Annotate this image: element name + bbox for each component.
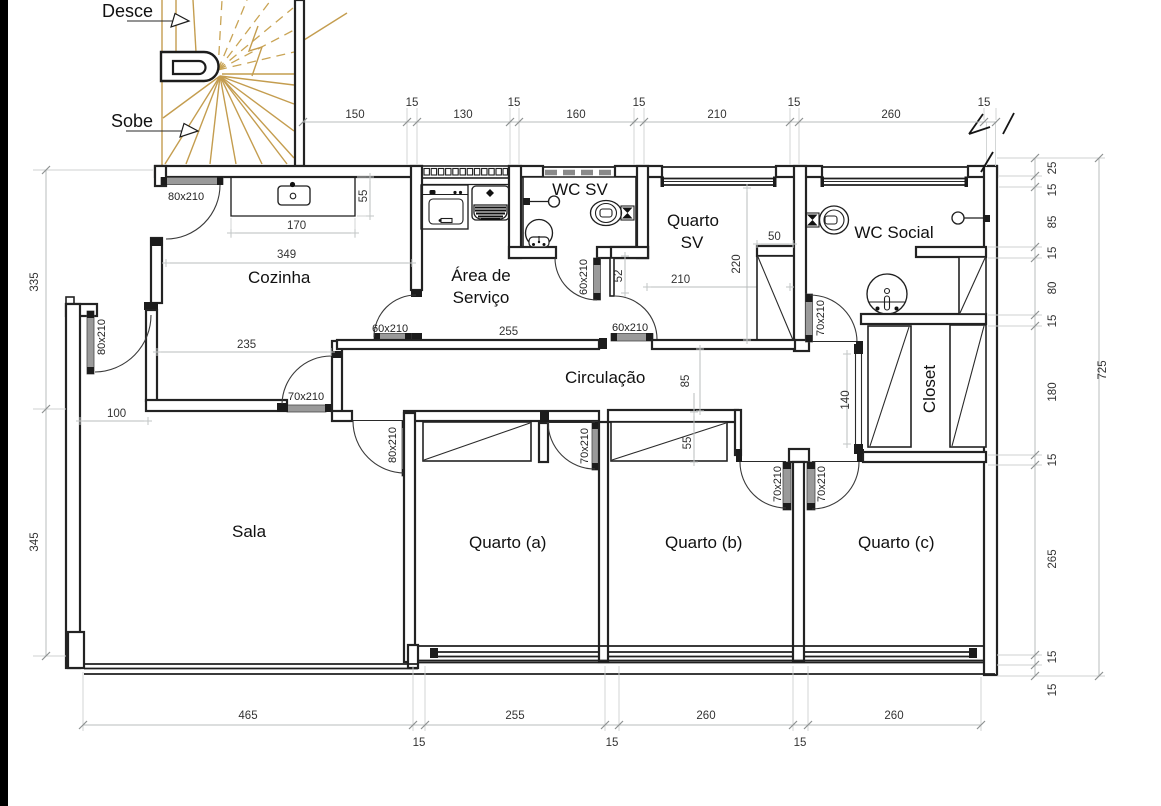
svg-text:60x210: 60x210 <box>578 259 590 295</box>
svg-text:70x210: 70x210 <box>815 300 827 336</box>
svg-text:Cozinha: Cozinha <box>248 268 311 287</box>
svg-text:100: 100 <box>107 408 126 420</box>
svg-text:349: 349 <box>277 249 296 261</box>
svg-text:55: 55 <box>358 190 370 203</box>
svg-text:Desce: Desce <box>102 1 153 21</box>
svg-text:Sala: Sala <box>232 522 267 541</box>
svg-text:85: 85 <box>1047 216 1059 229</box>
svg-text:160: 160 <box>566 109 585 121</box>
svg-text:235: 235 <box>237 339 256 351</box>
svg-text:15: 15 <box>1047 315 1059 328</box>
svg-text:15: 15 <box>978 97 991 109</box>
svg-text:255: 255 <box>499 326 518 338</box>
svg-text:15: 15 <box>1047 184 1059 197</box>
svg-text:15: 15 <box>1047 684 1059 697</box>
svg-text:70x210: 70x210 <box>288 391 324 403</box>
svg-text:15: 15 <box>606 737 619 749</box>
svg-text:85: 85 <box>680 375 692 388</box>
svg-text:Sobe: Sobe <box>111 111 153 131</box>
svg-text:265: 265 <box>1047 549 1059 568</box>
svg-text:170: 170 <box>287 220 306 232</box>
svg-text:25: 25 <box>1047 162 1059 175</box>
svg-text:140: 140 <box>840 390 852 409</box>
svg-text:SV: SV <box>681 233 704 252</box>
svg-text:255: 255 <box>505 710 524 722</box>
svg-text:70x210: 70x210 <box>579 428 591 464</box>
svg-text:55: 55 <box>682 437 694 450</box>
svg-text:80x210: 80x210 <box>387 427 399 463</box>
svg-text:WC SV: WC SV <box>552 180 608 199</box>
svg-text:70x210: 70x210 <box>816 466 828 502</box>
svg-text:15: 15 <box>508 97 521 109</box>
svg-text:260: 260 <box>696 710 715 722</box>
svg-text:260: 260 <box>884 710 903 722</box>
svg-text:80x210: 80x210 <box>168 191 204 203</box>
svg-text:210: 210 <box>707 109 726 121</box>
svg-text:15: 15 <box>788 97 801 109</box>
svg-text:15: 15 <box>633 97 646 109</box>
svg-text:60x210: 60x210 <box>612 322 648 334</box>
svg-text:WC Social: WC Social <box>854 223 933 242</box>
svg-text:15: 15 <box>413 737 426 749</box>
svg-text:Serviço: Serviço <box>453 288 510 307</box>
svg-text:335: 335 <box>29 272 41 291</box>
svg-text:15: 15 <box>1047 247 1059 260</box>
svg-text:345: 345 <box>29 532 41 551</box>
svg-text:15: 15 <box>1047 454 1059 467</box>
svg-text:180: 180 <box>1047 382 1059 401</box>
svg-text:150: 150 <box>345 109 364 121</box>
svg-text:50: 50 <box>768 231 781 243</box>
svg-text:Quarto (b): Quarto (b) <box>665 533 742 552</box>
svg-text:Quarto: Quarto <box>667 211 719 230</box>
svg-text:130: 130 <box>453 109 472 121</box>
svg-text:80: 80 <box>1047 282 1059 295</box>
svg-text:220: 220 <box>731 254 743 273</box>
svg-text:15: 15 <box>794 737 807 749</box>
svg-text:725: 725 <box>1097 360 1109 379</box>
svg-text:70x210: 70x210 <box>772 466 784 502</box>
svg-text:Circulação: Circulação <box>565 368 645 387</box>
svg-text:465: 465 <box>238 710 257 722</box>
svg-text:15: 15 <box>406 97 419 109</box>
svg-text:Quarto (a): Quarto (a) <box>469 533 546 552</box>
svg-text:Closet: Closet <box>920 365 939 413</box>
svg-text:Quarto (c): Quarto (c) <box>858 533 935 552</box>
svg-text:60x210: 60x210 <box>372 323 408 335</box>
svg-text:80x210: 80x210 <box>96 319 108 355</box>
svg-text:210: 210 <box>671 274 690 286</box>
svg-text:Área de: Área de <box>451 266 511 285</box>
svg-text:15: 15 <box>1047 651 1059 664</box>
svg-text:260: 260 <box>881 109 900 121</box>
